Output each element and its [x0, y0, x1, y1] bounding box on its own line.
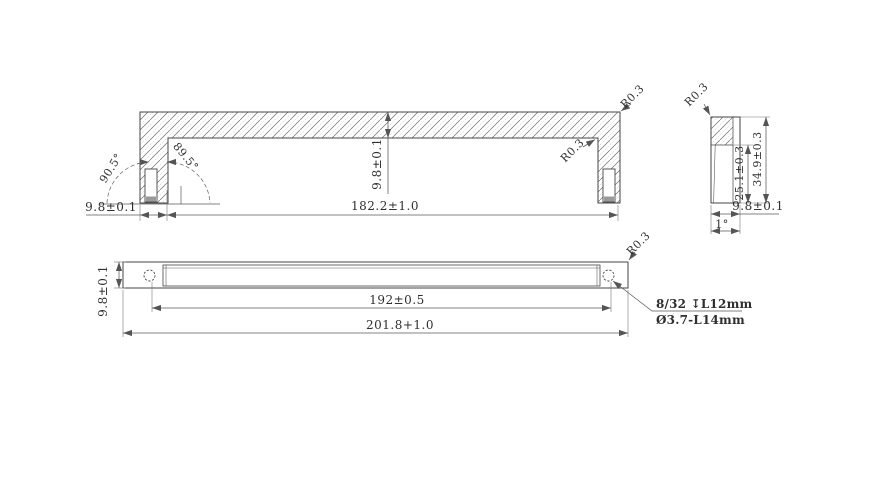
dim-angle-left: 90.5°: [97, 151, 125, 185]
dim-side-width: 9.8±0.1: [732, 199, 784, 213]
side-view: 25.1±0.3 34.9±0.3 9.8±0.1 1° R0.3: [682, 80, 784, 234]
dim-side-corner-radius: R0.3: [682, 80, 711, 109]
thread-note-line1: 8/32 ↧L12mm: [656, 297, 752, 311]
plan-hole-left-circle: [144, 270, 155, 281]
dim-plan-hole-spacing: 192±0.5: [369, 293, 425, 307]
plan-radius-leader: R0.3: [624, 229, 653, 260]
dim-section-thickness: 9.8±0.1: [370, 138, 384, 190]
drawing-sheet: 90.5° 89.5° 9.8±0.1 9.8±0.1 182.2±1.0 R0…: [0, 0, 883, 501]
dim-section-end-offset: 9.8±0.1: [85, 200, 137, 214]
side-hatch-area: [711, 117, 733, 145]
section-hole-left: [145, 169, 157, 202]
dim-section-inner-length: 182.2±1.0: [351, 199, 419, 213]
dim-plan-overall-length: 201.8+1.0: [366, 318, 434, 332]
plan-view: 9.8±0.1 192±0.5 201.8+1.0 R0.3 8/32 ↧L12…: [96, 229, 752, 337]
plan-hole-right-circle: [603, 270, 614, 281]
dim-plan-depth: 9.8±0.1: [96, 265, 110, 317]
dim-plan-corner-radius: R0.3: [624, 229, 653, 258]
section-view: 90.5° 89.5° 9.8±0.1 9.8±0.1 182.2±1.0 R0…: [85, 82, 647, 221]
dim-angle-right: 89.5°: [170, 140, 201, 173]
thread-callout: 8/32 ↧L12mm Ø3.7-L14mm: [613, 281, 752, 327]
side-radius-leader: R0.3: [682, 80, 711, 115]
dim-side-overall-height: 34.9±0.3: [751, 131, 764, 186]
section-hole-right: [603, 169, 615, 202]
dim-side-inner-height: 25.1±0.3: [733, 145, 746, 200]
dim-section-inner-radius: R0.3: [558, 136, 587, 165]
dim-side-draft-angle: 1°: [715, 218, 729, 231]
dim-section-corner-radius: R0.3: [618, 82, 647, 111]
technical-drawing-canvas: 90.5° 89.5° 9.8±0.1 9.8±0.1 182.2±1.0 R0…: [0, 0, 883, 501]
thread-note-line2: Ø3.7-L14mm: [656, 313, 745, 327]
